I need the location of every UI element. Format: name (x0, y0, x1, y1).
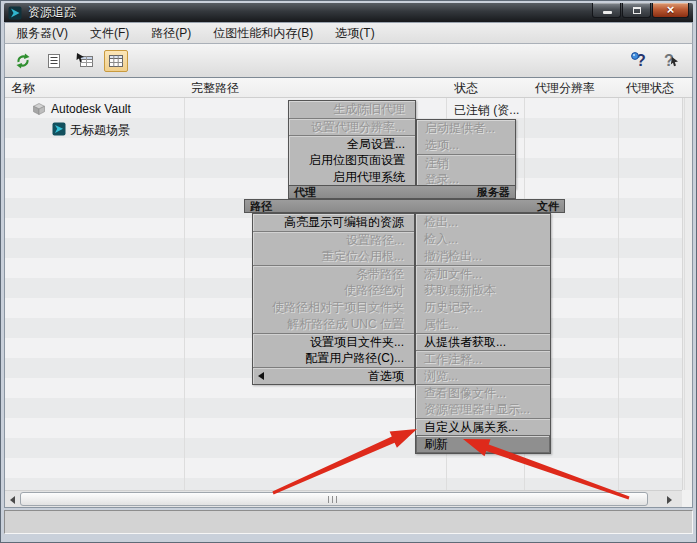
menu-item: 属性... (416, 316, 550, 333)
menu-item: 使路径相对于项目文件夹 (253, 299, 414, 316)
menu-item: 检入... (416, 231, 550, 248)
app-logo-icon (8, 6, 22, 20)
column-header-full-path[interactable]: 完整路径 (191, 80, 239, 97)
toolbar: ? ? (4, 44, 693, 77)
menu-item[interactable]: 启用代理系统 (289, 169, 415, 186)
quad-menu-file: 检出... 检入... 撤消检出... 添加文件... 获取最新版本 历史记录.… (415, 213, 551, 454)
row-label: 无标题场景 (70, 122, 130, 139)
quad-menu-path: 高亮显示可编辑的资源 设置路径... 重定位公用根... 条带路径 使路径绝对 … (252, 213, 415, 385)
column-header-name[interactable]: 名称 (11, 80, 35, 97)
scroll-right-icon (667, 496, 672, 504)
menu-item: 条带路径 (253, 265, 414, 282)
list-view-icon (45, 52, 63, 70)
restore-icon (633, 7, 641, 14)
quad-label-bar-top: 代理 服务器 (288, 185, 516, 199)
refresh-icon (14, 52, 32, 70)
max-scene-icon (52, 122, 66, 136)
window-title: 资源追踪 (28, 3, 76, 22)
menu-item[interactable]: 启用位图页面设置 (289, 152, 415, 169)
menu-item[interactable]: 高亮显示可编辑的资源 (253, 214, 414, 231)
menu-bitmap-performance[interactable]: 位图性能和内存(B) (202, 22, 324, 45)
menu-item[interactable]: 设置项目文件夹... (253, 333, 414, 350)
quad-menu-server: 启动提供者... 选项... 注销 登录... (416, 119, 516, 189)
menu-item: 选项... (417, 137, 515, 154)
menu-item[interactable]: 全局设置... (289, 135, 415, 152)
menu-item: 生成陈旧代理 (289, 101, 415, 118)
minimize-button[interactable] (592, 3, 621, 18)
grid-view-button[interactable] (104, 50, 128, 72)
row-label: Autodesk Vault (51, 102, 131, 116)
scroll-left-button[interactable] (5, 492, 19, 507)
list-view-button[interactable] (42, 50, 66, 72)
menu-item[interactable]: 自定义从属关系... (416, 418, 550, 435)
asset-list-panel: 名称 完整路径 状态 代理分辨率 代理状态 Autodesk Vault 已注销… (4, 77, 693, 508)
horizontal-scrollbar[interactable] (5, 490, 682, 507)
menu-item: 查看图像文件... (416, 384, 550, 401)
menu-item: 获取最新版本 (416, 282, 550, 299)
context-help-button[interactable]: ? (660, 49, 682, 71)
table-pointer-icon (75, 52, 95, 70)
menu-item: 工作注释... (416, 350, 550, 367)
menu-item: 重定位公用根... (253, 248, 414, 265)
quad-label-path: 路径 (250, 200, 272, 212)
menu-item-refresh[interactable]: 刷新 (416, 435, 550, 453)
column-header-status[interactable]: 状态 (454, 80, 478, 97)
scroll-right-button[interactable] (662, 492, 676, 507)
menu-item: 历史记录... (416, 299, 550, 316)
menu-item: 注销 (417, 154, 515, 171)
column-header-proxy-status[interactable]: 代理状态 (626, 80, 674, 97)
help-button[interactable]: ? (628, 49, 650, 71)
row-status: 已注销 (资... (454, 102, 519, 119)
submenu-arrow-icon (258, 372, 264, 380)
table-pointer-view-button[interactable] (73, 50, 97, 72)
menu-server[interactable]: 服务器(V) (5, 22, 79, 45)
grid-view-icon (107, 53, 125, 69)
column-header-row: 名称 完整路径 状态 代理分辨率 代理状态 (5, 78, 692, 98)
quad-menu-proxy: 生成陈旧代理 设置代理分辨率... 全局设置... 启用位图页面设置 启用代理系… (288, 100, 416, 187)
menu-item: 使路径绝对 (253, 282, 414, 299)
menu-item-preferences[interactable]: 首选项 (253, 367, 414, 384)
quad-label-bar-bottom: 路径 文件 (244, 199, 565, 213)
scrollbar-grip-icon (328, 496, 340, 503)
refresh-toolbar-button[interactable] (11, 50, 35, 72)
context-help-icon: ? (661, 50, 681, 70)
menu-item: 设置代理分辨率... (289, 118, 415, 135)
menu-item: 浏览... (416, 367, 550, 384)
menu-paths[interactable]: 路径(P) (140, 22, 202, 45)
quad-label-file: 文件 (537, 200, 559, 212)
menu-options[interactable]: 选项(T) (324, 22, 385, 45)
quad-label-server: 服务器 (477, 186, 510, 198)
help-icon: ? (629, 50, 649, 70)
asset-tracking-window: 资源追踪 服务器(V) 文件(F) 路径(P) 位图性能和内存(B) 选项(T) (0, 0, 697, 543)
menu-item: 启动提供者... (417, 120, 515, 137)
menu-item[interactable]: 从提供者获取... (416, 333, 550, 350)
menu-item: 解析路径成 UNC 位置 (253, 316, 414, 333)
menu-item: 撤消检出... (416, 248, 550, 265)
menu-item: 设置路径... (253, 231, 414, 248)
restore-button[interactable] (622, 3, 651, 18)
menu-item-label: 首选项 (368, 369, 404, 383)
menu-file[interactable]: 文件(F) (79, 22, 140, 45)
menu-item: 检出... (416, 214, 550, 231)
menu-item: 添加文件... (416, 265, 550, 282)
column-header-proxy-resolution[interactable]: 代理分辨率 (535, 80, 595, 97)
vault-icon (32, 102, 46, 116)
titlebar[interactable]: 资源追踪 (4, 3, 693, 22)
quad-label-proxy: 代理 (294, 186, 316, 198)
menu-item: 资源管理器中显示... (416, 401, 550, 418)
scrollbar-thumb[interactable] (20, 492, 648, 506)
close-button[interactable] (652, 3, 689, 18)
menu-item[interactable]: 配置用户路径(C)... (253, 350, 414, 367)
minimize-icon (603, 11, 612, 14)
status-bar (4, 510, 693, 534)
menu-bar: 服务器(V) 文件(F) 路径(P) 位图性能和内存(B) 选项(T) (4, 22, 693, 44)
scroll-left-icon (10, 496, 15, 504)
